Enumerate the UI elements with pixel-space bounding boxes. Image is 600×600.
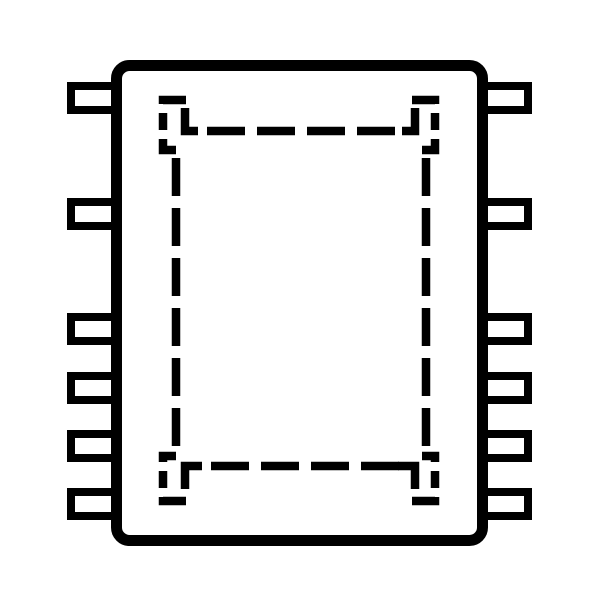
page-canvas — [0, 0, 600, 600]
ic-package-outline-diagram — [0, 0, 600, 600]
package-body — [117, 66, 483, 541]
